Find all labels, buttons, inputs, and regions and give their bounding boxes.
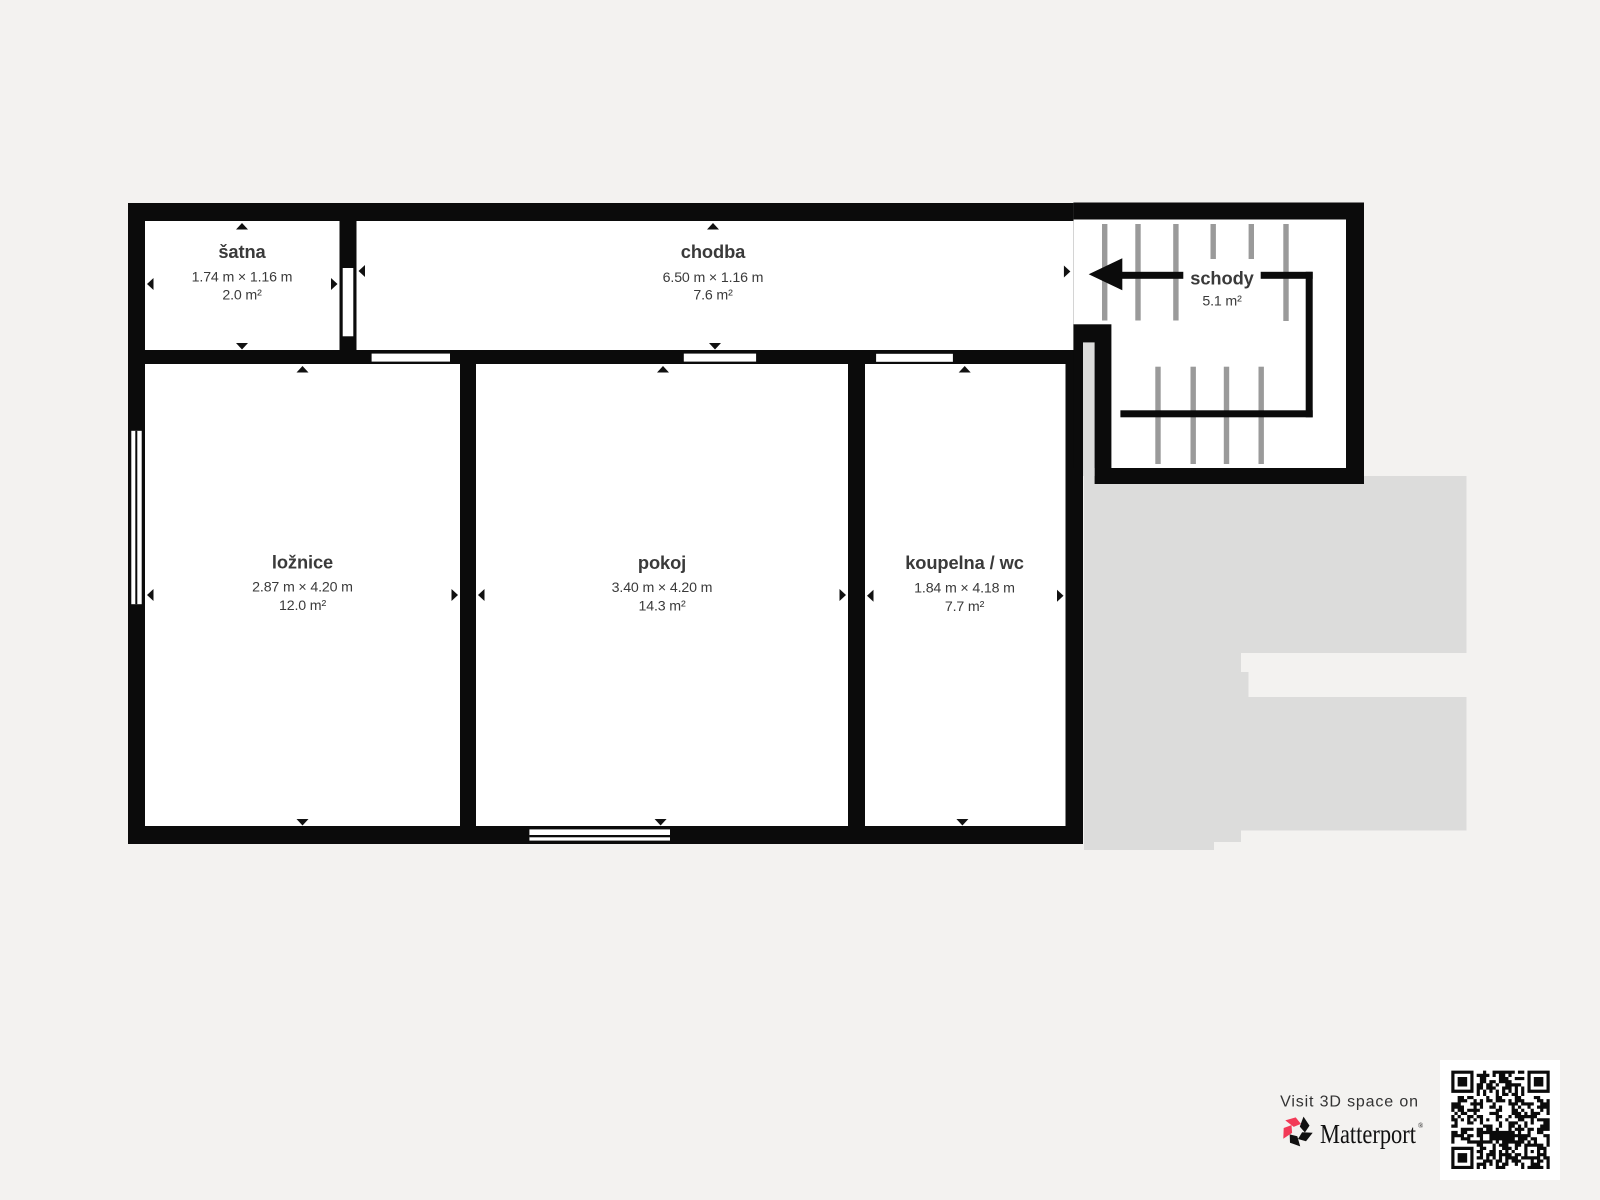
svg-text:12.0 m²: 12.0 m² — [279, 598, 326, 614]
svg-text:koupelna / wc: koupelna / wc — [905, 552, 1024, 573]
svg-text:1.74 m × 1.16 m: 1.74 m × 1.16 m — [192, 270, 293, 286]
svg-text:schody: schody — [1190, 268, 1254, 289]
svg-text:6.50 m × 1.16 m: 6.50 m × 1.16 m — [663, 270, 764, 286]
svg-text:2.87 m × 4.20 m: 2.87 m × 4.20 m — [252, 580, 353, 596]
svg-text:chodba: chodba — [681, 241, 746, 262]
svg-text:2.0 m²: 2.0 m² — [222, 288, 262, 304]
svg-text:7.7 m²: 7.7 m² — [945, 599, 985, 615]
svg-text:pokoj: pokoj — [638, 552, 686, 573]
svg-text:7.6 m²: 7.6 m² — [693, 288, 733, 304]
svg-text:®: ® — [1418, 1122, 1424, 1130]
svg-text:1.84 m × 4.18 m: 1.84 m × 4.18 m — [914, 581, 1015, 597]
svg-text:14.3 m²: 14.3 m² — [638, 599, 685, 615]
svg-text:5.1 m²: 5.1 m² — [1202, 294, 1242, 310]
svg-text:šatna: šatna — [218, 241, 266, 262]
svg-text:Visit 3D space on: Visit 3D space on — [1280, 1094, 1419, 1111]
svg-text:Matterport: Matterport — [1320, 1119, 1416, 1149]
svg-text:ložnice: ložnice — [272, 552, 333, 573]
svg-text:3.40 m × 4.20 m: 3.40 m × 4.20 m — [612, 580, 713, 596]
